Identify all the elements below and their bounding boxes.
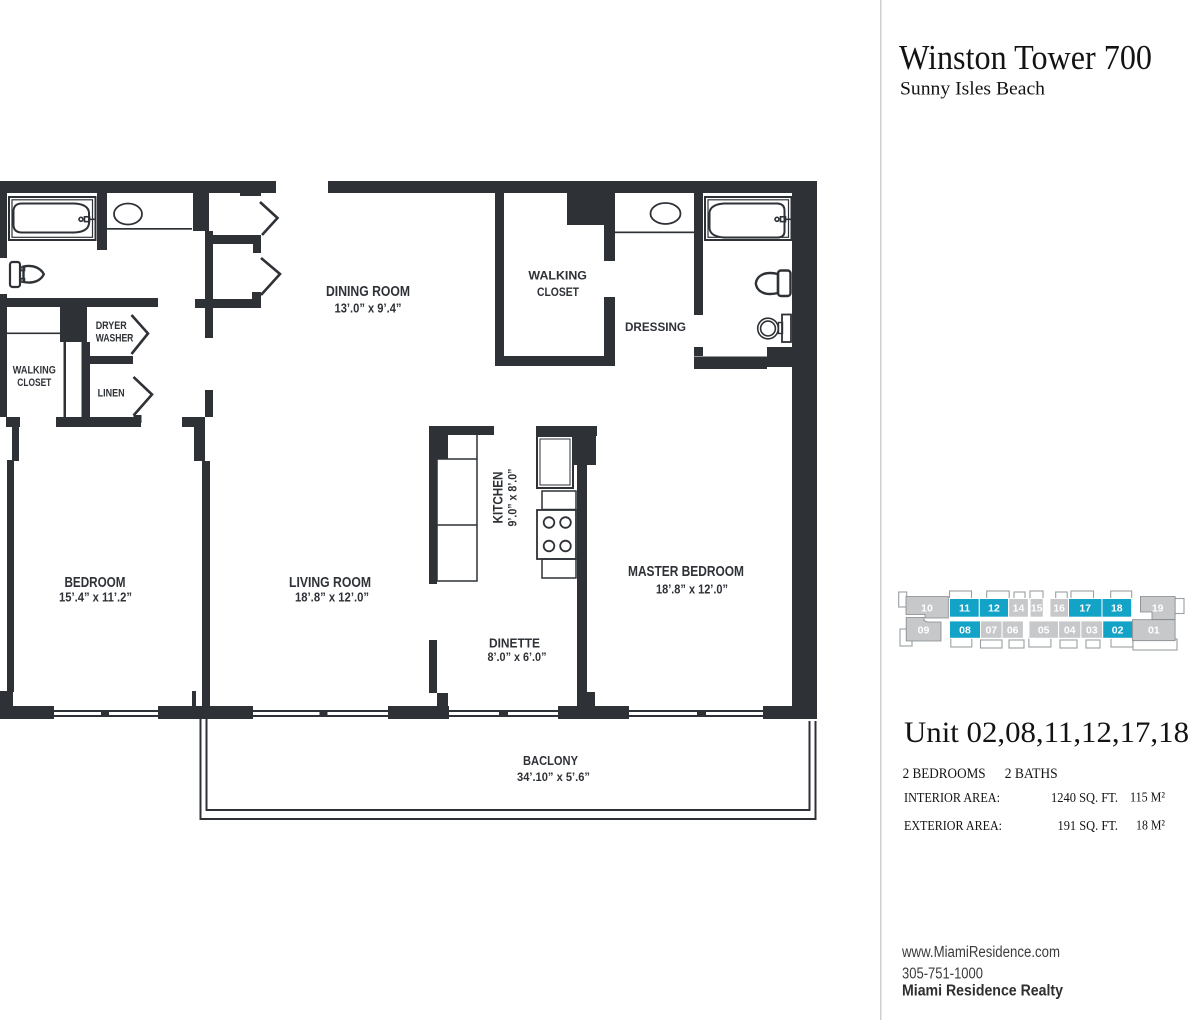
svg-text:DRESSING: DRESSING — [625, 320, 686, 334]
svg-text:17: 17 — [1079, 603, 1091, 615]
svg-text:CLOSET: CLOSET — [537, 285, 579, 299]
svg-text:LINEN: LINEN — [98, 388, 125, 400]
svg-text:Winston Tower 700: Winston Tower 700 — [899, 38, 1152, 77]
svg-text:04: 04 — [1064, 625, 1076, 637]
svg-text:18 M²: 18 M² — [1136, 818, 1165, 833]
svg-text:19: 19 — [1152, 603, 1164, 615]
svg-text:DINETTE: DINETTE — [489, 637, 540, 651]
svg-text:18’.8” x 12’.0”: 18’.8” x 12’.0” — [295, 590, 369, 605]
svg-text:191 SQ. FT.: 191 SQ. FT. — [1058, 819, 1119, 834]
svg-text:09: 09 — [918, 625, 930, 637]
svg-text:15’.4” x 11’.2”: 15’.4” x 11’.2” — [59, 590, 132, 605]
svg-text:115 M²: 115 M² — [1130, 791, 1165, 806]
svg-text:34’.10” x 5’.6”: 34’.10” x 5’.6” — [517, 770, 590, 784]
svg-text:08: 08 — [959, 625, 971, 637]
svg-text:15: 15 — [1031, 603, 1043, 615]
svg-text:BACLONY: BACLONY — [523, 754, 579, 768]
svg-text:DRYER: DRYER — [96, 320, 127, 332]
svg-text:DINING ROOM: DINING ROOM — [326, 284, 410, 300]
svg-text:06: 06 — [1007, 625, 1019, 637]
svg-text:Unit 02,08,11,12,17,18: Unit 02,08,11,12,17,18 — [904, 716, 1189, 749]
svg-text:02: 02 — [1112, 625, 1124, 637]
svg-text:2 BEDROOMS: 2 BEDROOMS — [903, 766, 986, 782]
svg-text:WALKING: WALKING — [13, 365, 56, 377]
svg-text:13’.0” x 9’.4”: 13’.0” x 9’.4” — [335, 301, 402, 316]
svg-text:305-751-1000: 305-751-1000 — [902, 966, 983, 983]
svg-text:03: 03 — [1086, 625, 1098, 637]
svg-text:12: 12 — [988, 603, 1000, 615]
svg-text:KITCHEN: KITCHEN — [491, 472, 506, 524]
svg-text:Sunny Isles Beach: Sunny Isles Beach — [900, 80, 1045, 100]
svg-text:01: 01 — [1148, 625, 1160, 637]
svg-text:11: 11 — [959, 603, 970, 615]
svg-text:18: 18 — [1111, 603, 1123, 615]
svg-text:CLOSET: CLOSET — [17, 377, 51, 389]
svg-text:2 BATHS: 2 BATHS — [1005, 766, 1058, 782]
svg-text:1240 SQ. FT.: 1240 SQ. FT. — [1051, 791, 1118, 806]
svg-text:8’.0” x 6’.0”: 8’.0” x 6’.0” — [488, 650, 547, 664]
svg-text:Miami Residence Realty: Miami Residence Realty — [902, 983, 1063, 1000]
svg-text:05: 05 — [1038, 625, 1050, 637]
svg-text:INTERIOR AREA:: INTERIOR AREA: — [904, 791, 1000, 806]
svg-text:WASHER: WASHER — [96, 333, 134, 345]
svg-text:WALKING: WALKING — [528, 269, 587, 283]
svg-text:07: 07 — [985, 625, 997, 637]
svg-text:MASTER BEDROOM: MASTER BEDROOM — [628, 564, 744, 580]
svg-text:16: 16 — [1053, 603, 1065, 615]
svg-text:EXTERIOR AREA:: EXTERIOR AREA: — [904, 819, 1002, 834]
svg-text:18’.8” x 12’.0”: 18’.8” x 12’.0” — [656, 582, 728, 597]
svg-text:9’.0” x 8’.0”: 9’.0” x 8’.0” — [506, 469, 520, 527]
svg-text:www.MiamiResidence.com: www.MiamiResidence.com — [901, 944, 1060, 961]
svg-text:10: 10 — [921, 603, 933, 615]
svg-text:14: 14 — [1013, 603, 1025, 615]
